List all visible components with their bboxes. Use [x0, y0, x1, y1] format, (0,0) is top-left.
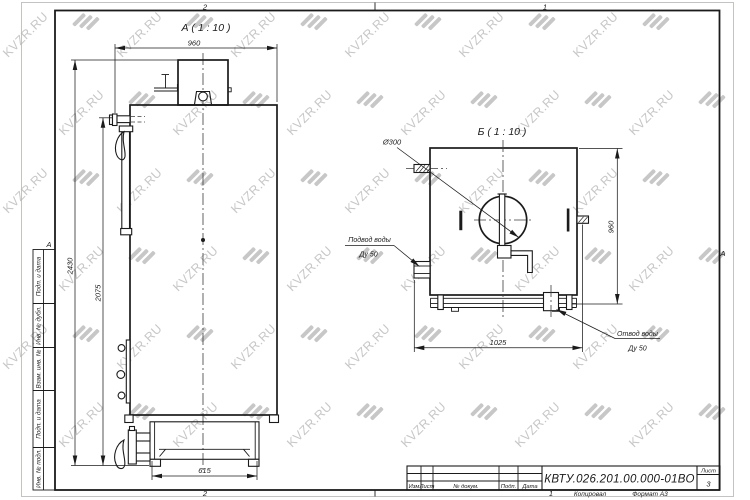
watermark-text: KVZR.RU [170, 243, 221, 294]
zone-number: 2 [202, 489, 208, 498]
watermark-text: KVZR.RU [626, 399, 677, 450]
watermark-logo [72, 320, 100, 348]
doc-number: КВТУ.026.201.00.000-01ВО [544, 474, 694, 486]
watermark-logo [414, 8, 442, 36]
watermark-logo [242, 242, 270, 270]
lug-hole [199, 92, 208, 101]
watermark-logo [128, 86, 156, 114]
titleblock-col: Лист [419, 484, 435, 490]
leader-diameter: Ø300 [382, 138, 519, 238]
watermark-logo [414, 320, 442, 348]
zone-number: 2 [202, 3, 208, 12]
hinge-bar [459, 211, 462, 231]
copied-label: Копировал [574, 491, 607, 498]
title-block: Изм Лист № докум. Подп. Дата КВТУ.026.20… [407, 466, 720, 490]
watermark-logo [470, 86, 498, 114]
svg-text:960: 960 [607, 220, 616, 233]
margin-column: Подп. и дата Инв. № дубл. Взам. инв. № П… [33, 250, 55, 491]
watermark-logo [528, 320, 556, 348]
svg-text:Ду 50: Ду 50 [358, 252, 377, 259]
water-outlet-block [544, 285, 559, 317]
watermark-text: KVZR.RU [284, 243, 335, 294]
watermark-logo [356, 86, 384, 114]
watermark-text: KVZR.RU [456, 9, 507, 60]
ash-door-latch [115, 427, 150, 469]
watermark-logo [242, 86, 270, 114]
watermark-logo [186, 320, 214, 348]
watermark-logo [698, 86, 726, 114]
stub-top-left [406, 165, 447, 173]
watermark-text: KVZR.RU [398, 399, 449, 450]
watermark-logo [698, 398, 726, 426]
stub-right [577, 216, 589, 223]
watermark-text: KVZR.RU [114, 9, 165, 60]
view-b-title: Б ( 1 : 10 ) [478, 126, 527, 138]
titleblock-col: № докум. [453, 484, 479, 490]
view-b: Б ( 1 : 10 ) [345, 126, 660, 353]
dim-615: 615 [152, 461, 257, 480]
margin-label: Подп. и дата [35, 399, 43, 439]
watermark-logo [528, 8, 556, 36]
sheet-value: 3 [706, 480, 711, 489]
watermark-logo [300, 164, 328, 192]
zone-letter-right: A [719, 249, 725, 258]
watermark-text: KVZR.RU [56, 87, 107, 138]
sheet-label: Лист [700, 469, 716, 475]
watermark-logo [356, 398, 384, 426]
svg-text:Ø300: Ø300 [382, 138, 402, 147]
watermark-logo [642, 8, 670, 36]
watermark-text: KVZR.RU [228, 165, 279, 216]
frame-border [55, 11, 720, 491]
watermark-logo [584, 398, 612, 426]
watermark-logo [300, 320, 328, 348]
margin-label: Взам. инв. № [36, 349, 43, 388]
watermark-text: KVZR.RU [228, 321, 279, 372]
watermark-text: KVZR.RU [512, 399, 563, 450]
watermark-text: KVZR.RU [170, 399, 221, 450]
svg-text:Подвод воды: Подвод воды [348, 236, 391, 244]
hinge-bar [567, 209, 570, 232]
watermark-logo [584, 86, 612, 114]
center-mark [201, 238, 205, 242]
watermark-logo [584, 242, 612, 270]
leader-water-inlet: Подвод воды Ду 50 [345, 236, 420, 267]
body-foot [125, 415, 133, 423]
zone-number: 1 [543, 3, 547, 12]
titleblock-col: Изм [409, 484, 420, 490]
watermark-logo [642, 164, 670, 192]
titleblock-col: Подп. [501, 484, 516, 490]
watermark-logo [528, 164, 556, 192]
svg-text:1025: 1025 [490, 338, 508, 347]
watermark-logo [470, 398, 498, 426]
svg-text:Отвод воды: Отвод воды [617, 330, 659, 338]
watermark-logo [300, 8, 328, 36]
damper-handle [511, 251, 532, 273]
watermark-text: KVZR.RU [284, 399, 335, 450]
watermark-text: KVZR.RU [342, 165, 393, 216]
base-box [150, 422, 259, 467]
titleblock-col: Дата [521, 484, 538, 490]
axle-bracket [498, 246, 512, 259]
svg-text:960: 960 [188, 39, 201, 48]
side-stub [110, 114, 146, 126]
watermark-text: KVZR.RU [626, 87, 677, 138]
watermark-text: KVZR.RU [228, 9, 279, 60]
svg-text:2430: 2430 [66, 257, 75, 276]
watermark-text: KVZR.RU [342, 9, 393, 60]
watermark-logo [72, 164, 100, 192]
svg-text:615: 615 [198, 466, 211, 475]
zone-letter-left: A [45, 240, 51, 249]
watermark-text: KVZR.RU [342, 321, 393, 372]
margin-label: Инв. № дубл. [35, 306, 43, 345]
watermark-logo [470, 242, 498, 270]
margin-label: Инв. № подл. [35, 449, 43, 488]
watermark-text: KVZR.RU [398, 87, 449, 138]
damper-lever [154, 75, 178, 92]
sheet-frame: 2 1 2 1 Копировал Формат А3 A A [22, 3, 734, 499]
watermark-logo [128, 242, 156, 270]
watermark-text: KVZR.RU [626, 243, 677, 294]
lower-door-hinges [117, 340, 130, 403]
body-foot [270, 415, 279, 423]
svg-text:Ду 50: Ду 50 [627, 346, 646, 353]
damper-axle [499, 194, 504, 246]
watermark-text: KVZR.RU [0, 9, 51, 60]
watermark-logo [72, 8, 100, 36]
watermark-text: KVZR.RU [570, 9, 621, 60]
margin-label: Подп. и дата [35, 256, 43, 296]
watermark-logo [186, 164, 214, 192]
drawing-sheet: KVZR.RUKVZR.RUKVZR.RUKVZR.RUKVZR.RUKVZR.… [0, 0, 750, 500]
watermark-text: KVZR.RU [56, 399, 107, 450]
watermark-text: KVZR.RU [284, 87, 335, 138]
format-label: Формат А3 [632, 491, 668, 498]
view-a-title: А ( 1 : 10 ) [180, 22, 230, 34]
watermark-text: KVZR.RU [0, 165, 51, 216]
svg-text:2075: 2075 [94, 284, 103, 303]
